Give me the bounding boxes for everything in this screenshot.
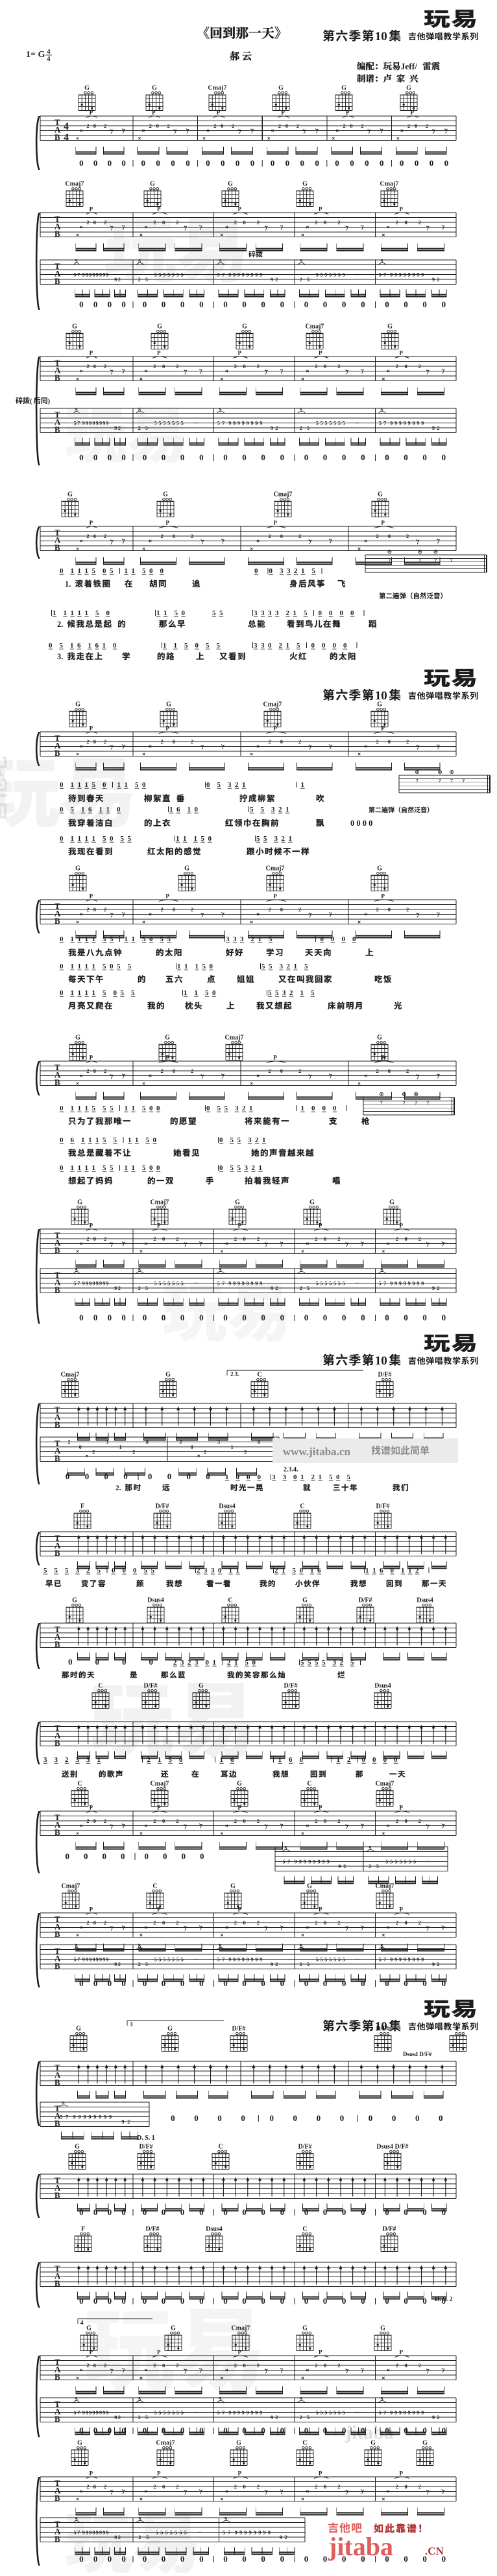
svg-text:G: G (302, 181, 308, 188)
svg-text:B: B (55, 276, 60, 286)
svg-text:P: P (90, 206, 93, 213)
svg-text:2: 2 (92, 1449, 95, 1455)
svg-text:G: G (309, 1199, 315, 1206)
svg-text:P: P (90, 350, 93, 357)
svg-text:P: P (238, 1223, 242, 1229)
svg-text:P: P (273, 1055, 277, 1061)
svg-text:C: C (218, 2144, 223, 2151)
svg-text:Dsus4: Dsus4 (206, 2226, 223, 2233)
svg-text:C: C (307, 1781, 311, 1788)
svg-text:Cmaj7: Cmaj7 (151, 1781, 169, 1788)
svg-text:D/F#: D/F# (145, 2226, 159, 2233)
svg-text:G: G (76, 2026, 81, 2033)
svg-text:2: 2 (244, 1449, 247, 1455)
svg-text:D. S. 1: D. S. 1 (137, 2135, 155, 2142)
svg-text:jitaba: jitaba (328, 2532, 393, 2561)
svg-text:P: P (400, 2349, 404, 2356)
svg-text:P: P (152, 110, 156, 116)
svg-text:1.: 1. (65, 580, 71, 589)
svg-text:Cmaj7: Cmaj7 (62, 1883, 80, 1890)
svg-text:C: C (300, 1503, 304, 1510)
svg-text:B: B (55, 2278, 60, 2288)
svg-text:Cmaj7: Cmaj7 (208, 85, 227, 92)
svg-text:P: P (400, 1906, 404, 1913)
svg-text:G: G (157, 323, 162, 331)
svg-text:Cmaj7: Cmaj7 (274, 491, 293, 498)
svg-text:Cmaj7: Cmaj7 (306, 323, 324, 331)
svg-text:G: G (165, 1035, 170, 1042)
svg-text:P: P (90, 1055, 93, 1061)
svg-text:92: 92 (114, 1961, 121, 1967)
svg-text:Dsus4 D/F#: Dsus4 D/F# (376, 2144, 408, 2151)
svg-text:Cmaj7: Cmaj7 (151, 1199, 169, 1206)
svg-text:2.: 2. (57, 620, 63, 629)
svg-text:B: B (55, 2414, 60, 2424)
svg-text:G: G (377, 701, 382, 708)
svg-text:P: P (381, 893, 385, 900)
svg-text:P: P (273, 520, 277, 526)
svg-text:G: G (77, 1199, 82, 1206)
svg-text:D/F#: D/F# (378, 1372, 391, 1379)
svg-text:C: C (257, 1372, 261, 1379)
svg-text:P: P (157, 350, 161, 357)
svg-text:G: G (387, 323, 393, 331)
svg-text:D/F#: D/F# (298, 2144, 311, 2151)
svg-text:P: P (165, 893, 169, 900)
svg-text:B: B (55, 2493, 60, 2503)
svg-text:Jeff/: Jeff/ (401, 62, 418, 71)
svg-text:B: B (55, 1961, 60, 1971)
svg-text:B: B (55, 1639, 60, 1649)
svg-text:D/F#: D/F# (284, 1683, 297, 1690)
svg-text:P: P (90, 2349, 93, 2356)
svg-text:B: B (55, 373, 60, 382)
svg-text:G: G (72, 323, 77, 331)
svg-text:1= G: 1= G (26, 50, 45, 60)
svg-text:3: 3 (217, 1440, 220, 1446)
svg-text:P: P (346, 110, 350, 116)
svg-text:92: 92 (114, 2415, 121, 2420)
svg-text:B: B (55, 1827, 60, 1837)
svg-text:jitaba: jitaba (345, 2422, 394, 2443)
svg-text:4: 4 (64, 121, 69, 132)
svg-text:C: C (228, 1597, 232, 1604)
svg-text:G: G (184, 865, 189, 872)
svg-text:P: P (165, 725, 169, 732)
svg-text:P: P (273, 725, 277, 732)
svg-text:Dsus4: Dsus4 (219, 1503, 236, 1510)
svg-text:D/F#: D/F# (382, 2226, 396, 2233)
svg-text:P: P (157, 2470, 161, 2477)
svg-text:P: P (90, 725, 93, 732)
svg-text:P: P (238, 350, 242, 357)
svg-text:P: P (400, 206, 404, 213)
svg-text:B: B (55, 2190, 60, 2200)
svg-text:1: 1 (119, 1444, 122, 1450)
svg-text:.CN: .CN (425, 2545, 444, 2557)
svg-text:P: P (157, 1906, 161, 1913)
svg-text:1160112: 1160112 (365, 1567, 419, 1575)
svg-text:G: G (75, 701, 80, 708)
svg-text:G: G (242, 323, 247, 331)
svg-text:G: G (67, 491, 73, 498)
svg-text:D/F#: D/F# (358, 1597, 372, 1604)
svg-text:57: 57 (74, 2410, 80, 2416)
svg-text:G: G (75, 1035, 80, 1042)
svg-text:B: B (55, 1245, 60, 1255)
svg-text:99999999: 99999999 (82, 272, 109, 278)
svg-text:G: G (341, 85, 346, 92)
svg-text:3.: 3. (57, 652, 63, 661)
svg-text:Cmaj7: Cmaj7 (225, 1035, 244, 1042)
svg-text:G: G (171, 2325, 176, 2332)
svg-text:G: G (86, 2325, 91, 2332)
svg-text:99999999: 99999999 (82, 1957, 109, 1963)
svg-text:Cmaj7: Cmaj7 (266, 865, 285, 872)
svg-text:P: P (400, 2470, 404, 2477)
svg-text:F: F (456, 2026, 460, 2033)
svg-text:P: P (90, 1805, 93, 1811)
svg-text:Dsus4: Dsus4 (374, 1683, 391, 1690)
svg-text:92: 92 (114, 1285, 121, 1291)
svg-text:99999999: 99999999 (82, 2410, 109, 2416)
svg-text:B: B (55, 229, 60, 239)
svg-text:G: G (166, 701, 171, 708)
svg-text:P: P (319, 1223, 322, 1229)
svg-text:P: P (238, 1906, 242, 1913)
svg-text:): ) (48, 397, 51, 405)
svg-text:P: P (90, 520, 93, 526)
svg-text:Cmaj7: Cmaj7 (156, 2440, 175, 2447)
svg-text:P: P (281, 110, 285, 116)
svg-text:B: B (55, 2372, 60, 2382)
svg-text:G: G (72, 1597, 77, 1604)
svg-text:57: 57 (74, 272, 80, 278)
svg-text:P: P (381, 1055, 385, 1061)
svg-text:C: C (77, 1781, 82, 1788)
svg-text:Cmaj7: Cmaj7 (376, 1781, 394, 1788)
svg-text:P: P (90, 110, 93, 116)
svg-text:F: F (80, 1503, 84, 1510)
svg-text:C: C (302, 2226, 307, 2233)
svg-text:G: G (377, 865, 382, 872)
svg-text:B: B (55, 2534, 60, 2544)
svg-text:2.3.4.: 2.3.4. (284, 1466, 298, 1473)
svg-text:Cmaj7: Cmaj7 (66, 181, 84, 188)
svg-text:D/F#: D/F# (139, 2144, 152, 2151)
svg-text:0 0 0 0: 0 0 0 0 (350, 819, 372, 828)
svg-text:4: 4 (47, 55, 51, 63)
svg-text:1: 1 (231, 1444, 234, 1450)
svg-text:G: G (302, 2325, 308, 2332)
svg-text:P: P (238, 1805, 242, 1811)
svg-text:F: F (81, 2226, 85, 2233)
svg-text:P: P (411, 110, 415, 116)
svg-text:P: P (90, 2470, 93, 2477)
svg-text:P: P (319, 350, 322, 357)
svg-text:Cmaj7: Cmaj7 (380, 181, 399, 188)
svg-text:P: P (400, 1805, 404, 1811)
svg-text:G: G (152, 85, 157, 92)
svg-text:P: P (165, 520, 169, 526)
svg-text:99999999: 99999999 (82, 1281, 109, 1287)
svg-text:0: 0 (146, 1440, 149, 1446)
svg-text:G: G (228, 181, 233, 188)
svg-text:92: 92 (114, 277, 121, 283)
svg-text:D/F#: D/F# (376, 2026, 389, 2033)
svg-text:57: 57 (74, 1281, 80, 1287)
svg-text:P: P (238, 2470, 242, 2477)
svg-text:2.3.: 2.3. (230, 1371, 239, 1377)
svg-text:B: B (55, 543, 60, 552)
svg-text:0: 0 (79, 1444, 82, 1450)
svg-text:G: G (75, 2144, 80, 2151)
svg-text:G: G (150, 181, 155, 188)
svg-text:10: 10 (375, 1354, 387, 1368)
svg-text:G: G (84, 85, 90, 92)
svg-text:Cmaj7: Cmaj7 (61, 1372, 80, 1379)
svg-text:B: B (55, 1738, 60, 1748)
svg-text:(: ( (30, 397, 32, 405)
svg-text:G: G (235, 1199, 240, 1206)
svg-text:P: P (319, 206, 322, 213)
svg-text:P: P (238, 206, 242, 213)
svg-text:G: G (377, 1035, 382, 1042)
svg-text:4: 4 (64, 132, 69, 143)
svg-text:G: G (77, 2440, 82, 2447)
svg-text:P: P (157, 1223, 161, 1229)
svg-text:B: B (55, 2078, 60, 2087)
svg-text:57: 57 (74, 1957, 80, 1963)
svg-text:B: B (55, 1453, 60, 1463)
svg-text:G: G (230, 1883, 236, 1890)
svg-text:P: P (90, 893, 93, 900)
svg-text:B: B (55, 1420, 60, 1429)
svg-text:G: G (302, 1597, 308, 1604)
svg-text:B: B (55, 132, 60, 142)
svg-text:P: P (165, 1055, 169, 1061)
svg-text:C: C (302, 2440, 307, 2447)
svg-text:G: G (406, 85, 411, 92)
svg-text:2: 2 (132, 1449, 135, 1455)
svg-text:3: 3 (130, 2021, 133, 2028)
svg-text:33332150000: 33332150000 (254, 609, 354, 617)
svg-text:P: P (319, 2349, 322, 2356)
svg-text:G: G (163, 491, 168, 498)
svg-text:P: P (400, 350, 404, 357)
svg-text:2: 2 (68, 1440, 71, 1446)
svg-text:G: G (389, 1199, 394, 1206)
svg-text:P: P (273, 893, 277, 900)
svg-text:P: P (157, 1805, 161, 1811)
svg-text:P: P (319, 2470, 322, 2477)
svg-text:G: G (422, 2440, 428, 2447)
svg-text:3: 3 (106, 1440, 108, 1446)
svg-text:P: P (381, 520, 385, 526)
svg-text:B: B (55, 425, 60, 434)
svg-text:G: G (380, 2325, 385, 2332)
svg-text:G: G (165, 1372, 171, 1379)
svg-text:D/F#: D/F# (232, 2026, 245, 2033)
svg-text:P: P (90, 1906, 93, 1913)
svg-text:B: B (55, 1929, 60, 1939)
svg-text:0: 0 (191, 1444, 193, 1450)
svg-text:Dsus4: Dsus4 (147, 1597, 164, 1604)
svg-text:B: B (55, 916, 60, 926)
svg-text:P: P (319, 1805, 322, 1811)
svg-text:P: P (90, 1223, 93, 1229)
svg-text:2: 2 (204, 1449, 206, 1455)
svg-text:G: G (167, 2026, 173, 2033)
svg-text:C: C (152, 1883, 157, 1890)
svg-text:P: P (319, 1906, 322, 1913)
svg-text:2: 2 (180, 1440, 182, 1446)
svg-text:0: 0 (258, 1440, 260, 1446)
svg-text:99999999: 99999999 (82, 421, 109, 427)
svg-text:10: 10 (375, 30, 387, 43)
svg-text:B: B (55, 1548, 60, 1558)
svg-text:G: G (236, 2440, 241, 2447)
svg-text:G: G (237, 1781, 242, 1788)
svg-text:D/F#: D/F# (155, 1503, 169, 1510)
svg-text:Cmaj7: Cmaj7 (263, 701, 282, 708)
svg-text:Dsus4: Dsus4 (417, 1597, 433, 1604)
svg-text:B: B (55, 1077, 60, 1087)
svg-text:P: P (400, 1223, 404, 1229)
svg-text:Cmaj7: Cmaj7 (376, 1883, 394, 1890)
svg-text:Dsus4 D/F#: Dsus4 D/F# (403, 2051, 432, 2057)
svg-text:D. S. 2: D. S. 2 (435, 2296, 453, 2303)
svg-text:P: P (217, 110, 221, 116)
svg-text:B: B (55, 1285, 60, 1294)
svg-text:P: P (157, 206, 161, 213)
svg-text:G: G (307, 1883, 312, 1890)
svg-text:1: 1 (301, 781, 305, 789)
svg-text:B: B (55, 748, 60, 758)
svg-text:P: P (381, 725, 385, 732)
svg-text:G: G (278, 85, 284, 92)
svg-text:2.: 2. (115, 1484, 121, 1492)
svg-text:D/F#: D/F# (376, 1503, 389, 1510)
svg-text:G: G (75, 865, 80, 872)
svg-text:www.jitaba.cn: www.jitaba.cn (283, 1446, 350, 1458)
svg-text:4: 4 (80, 2319, 84, 2326)
svg-text:G: G (378, 491, 383, 498)
